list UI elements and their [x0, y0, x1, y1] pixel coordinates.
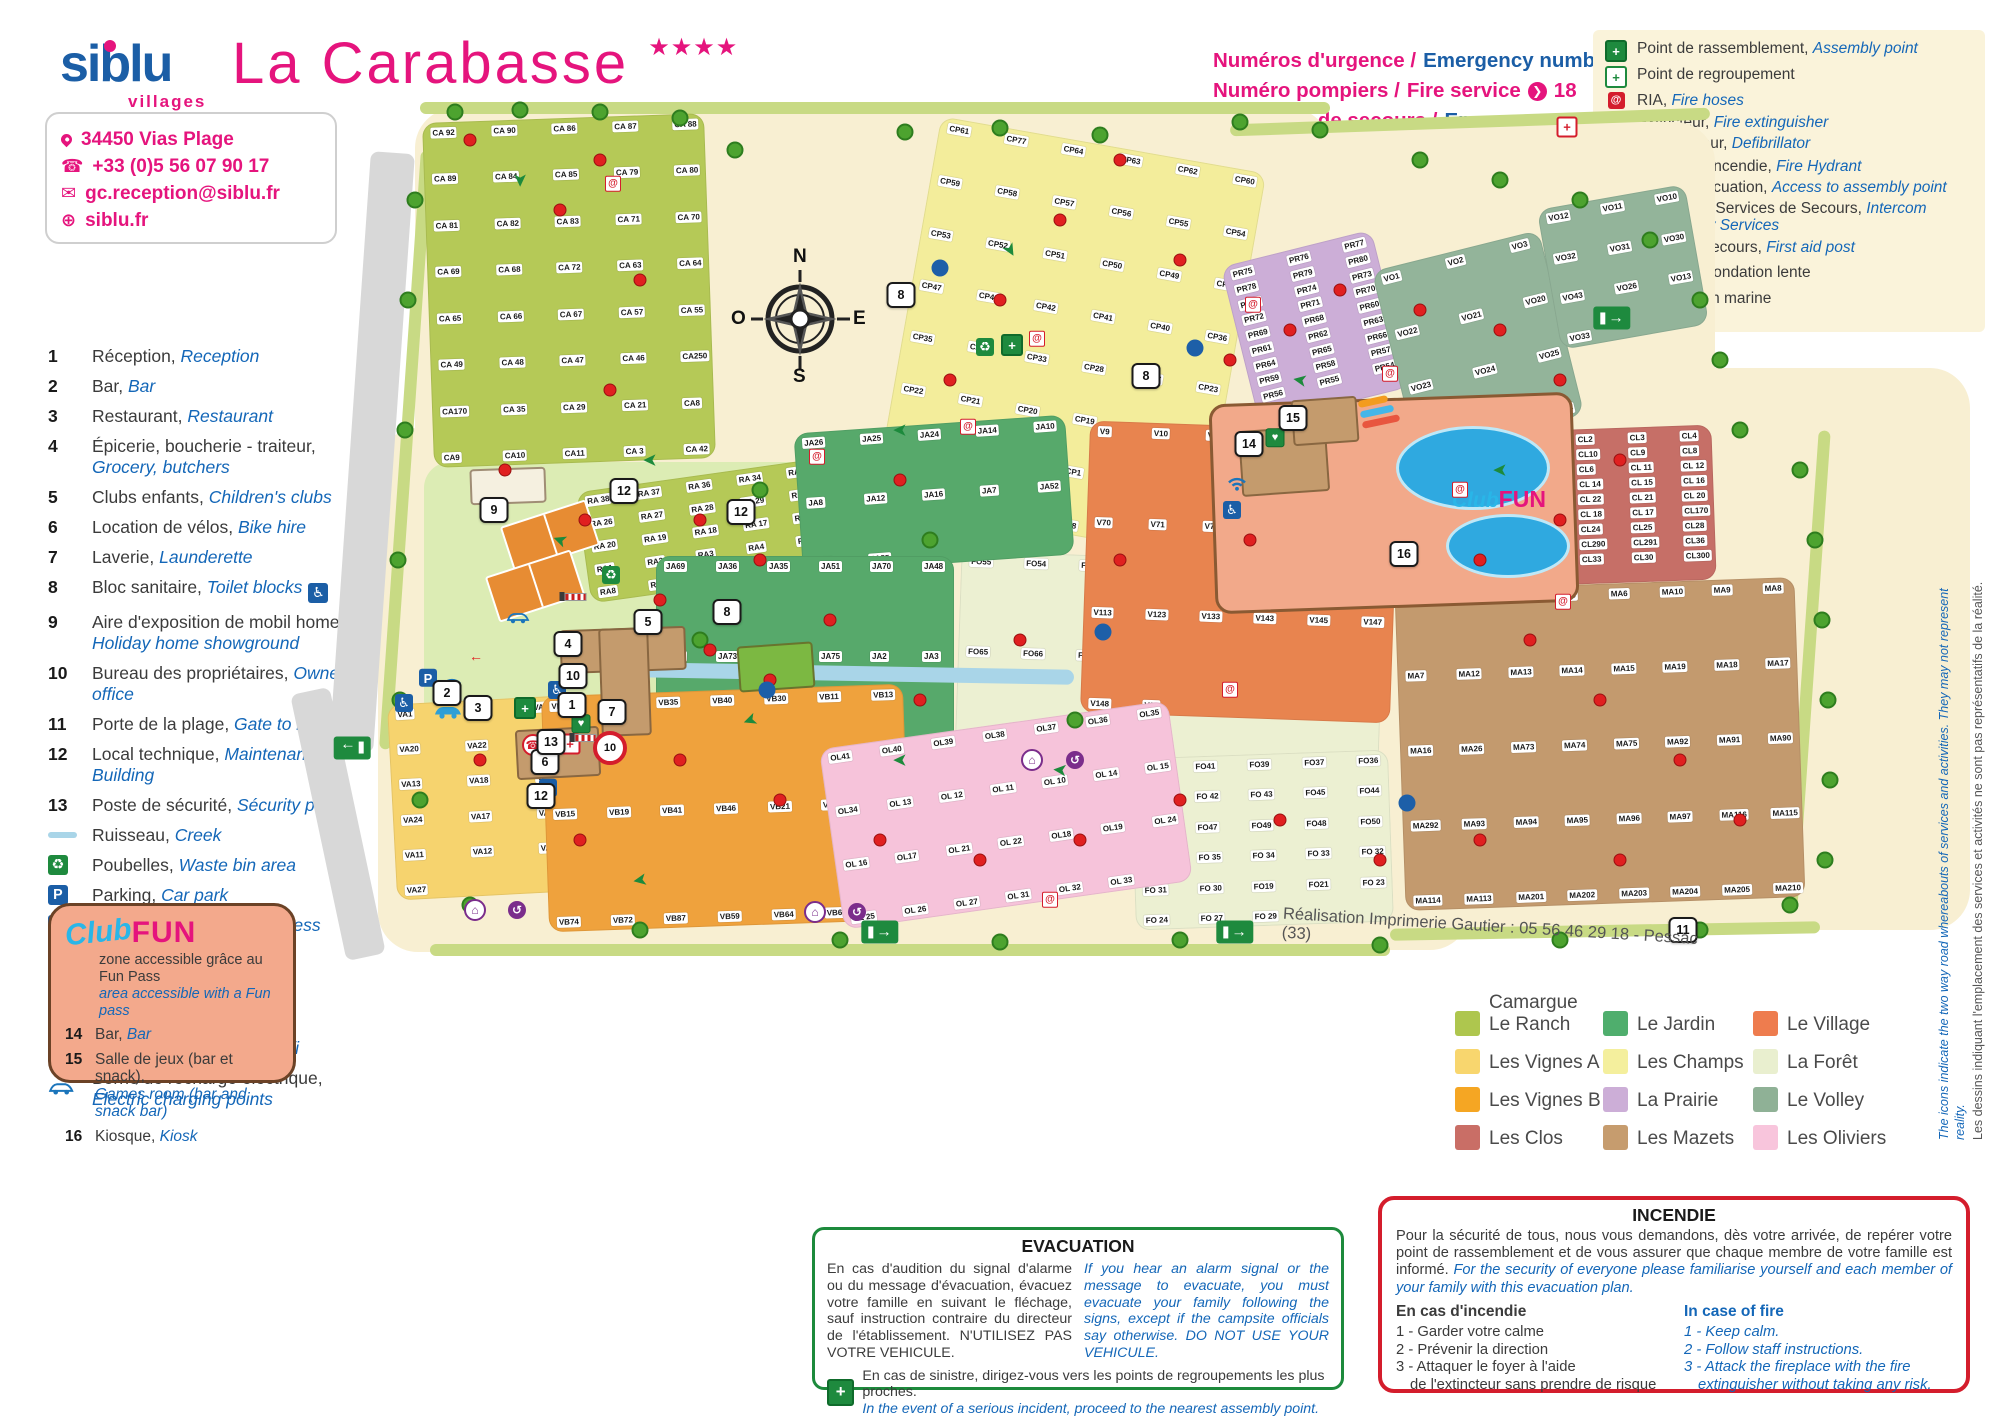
- plot-label: VO20: [1522, 292, 1548, 309]
- map-icon-assembly: +: [1001, 334, 1023, 356]
- plot-label: V10: [1152, 428, 1171, 440]
- plot-label: JA35: [767, 561, 790, 572]
- plot-label: MA90: [1768, 732, 1794, 744]
- plot-label: MA96: [1616, 813, 1642, 825]
- plot-label: CL8: [1680, 445, 1699, 457]
- plot-label: FO54: [1024, 558, 1048, 570]
- swimming-pool: [1446, 514, 1570, 578]
- fire-extinguisher-icon: [974, 854, 987, 867]
- facility-marker-8: 8: [713, 599, 742, 625]
- plot-label: MA9: [1712, 584, 1733, 596]
- plot-label: MA14: [1559, 664, 1585, 676]
- plot-label: CA250: [680, 350, 709, 362]
- plot-label: VB11: [817, 691, 841, 703]
- fire-extinguisher-icon: [1284, 324, 1297, 337]
- plot-label: MA205: [1722, 884, 1752, 896]
- plot-label: CL 12: [1680, 460, 1706, 472]
- facility-marker-5: 5: [634, 609, 663, 635]
- tree-icon: [1814, 612, 1831, 629]
- plot-label: CL 17: [1630, 507, 1656, 519]
- fire-step-en: 2 - Follow staff instructions.: [1684, 1342, 1952, 1360]
- map-icon-aid: +: [1557, 117, 1578, 138]
- tree-icon: [1792, 462, 1809, 479]
- tree-icon: [672, 110, 689, 127]
- plot-label: CP35: [910, 330, 936, 345]
- flood-risk-icon: ⌂: [464, 899, 486, 921]
- plot-label: CA 81: [433, 220, 460, 232]
- plot-label: VO13: [1668, 270, 1694, 285]
- assembly-point-icon: +: [1001, 334, 1023, 356]
- fire-instructions-box: INCENDIE Pour la sécurité de tous, nous …: [1378, 1196, 1970, 1393]
- plot-label: JA70: [870, 561, 893, 572]
- facility-marker-10: 10: [559, 663, 588, 689]
- plot-label: CL 21: [1630, 492, 1656, 504]
- plot-label: OL 27: [953, 896, 980, 911]
- plot-label: VO32: [1553, 250, 1579, 265]
- plot-label: JA48: [922, 561, 945, 572]
- plot-label: MA19: [1662, 661, 1688, 673]
- tree-icon: [992, 120, 1009, 137]
- incendie-en-column: In case of fire 1 - Keep calm.2 - Follow…: [1684, 1303, 1952, 1395]
- plot-label: OL38: [982, 728, 1007, 742]
- plot-label: PR79: [1290, 266, 1316, 282]
- fire-extinguisher-icon: [604, 384, 617, 397]
- plot-label: PR80: [1345, 252, 1371, 268]
- plot-label: VB46: [714, 803, 738, 815]
- plot-label: MA94: [1513, 816, 1539, 828]
- area-color-swatch: [1603, 1011, 1628, 1036]
- fire-extinguisher-icon: [1614, 854, 1627, 867]
- fire-hose-icon: @: [1245, 296, 1261, 312]
- plot-label: CA10: [503, 450, 528, 462]
- plot-label: OL 11: [990, 781, 1017, 795]
- plot-label: CP40: [1147, 319, 1173, 334]
- plot-label: CP51: [1042, 247, 1068, 262]
- incendie-intro: Pour la sécurité de tous, nous vous dema…: [1396, 1228, 1952, 1297]
- plot-label: V70: [1094, 517, 1113, 529]
- plot-label: CL 14: [1577, 478, 1603, 490]
- plot-label: CA 70: [675, 211, 702, 223]
- tree-icon: [447, 104, 464, 121]
- compass-north: N: [793, 246, 807, 268]
- plot-label: MA74: [1562, 739, 1588, 751]
- plot-label: CA 71: [615, 213, 642, 225]
- fire-hose-icon: @: [1452, 481, 1468, 497]
- tree-icon: [1822, 772, 1839, 789]
- plot-label: FO50: [1358, 816, 1382, 828]
- plot-label: CP77: [1004, 133, 1030, 148]
- plot-label: CA 85: [553, 169, 580, 181]
- fire-extinguisher-icon: [1014, 634, 1027, 647]
- fire-extinguisher-icon: [1174, 794, 1187, 807]
- plot-label: MA113: [1464, 893, 1494, 905]
- plot-label: CL30: [1632, 552, 1656, 564]
- plot-label: FO39: [1247, 759, 1271, 771]
- plot-label: OL 32: [1056, 881, 1083, 896]
- map-icon-redarrow: ←: [469, 648, 483, 666]
- plot-label: VA27: [404, 884, 428, 896]
- evacuation-note: En cas de sinistre, dirigez-vous vers le…: [862, 1368, 1329, 1417]
- plot-label: OL 31: [1005, 888, 1032, 903]
- barrier-icon: [560, 592, 587, 601]
- plot-label: MA114: [1413, 895, 1443, 907]
- facility-marker-8: 8: [1132, 363, 1161, 389]
- marine-submersion-icon: ↺: [508, 901, 526, 919]
- plot-label: VO25: [1536, 346, 1562, 363]
- plot-label: OL39: [931, 735, 956, 749]
- fire-hose-icon: @: [1382, 365, 1398, 381]
- fire-extinguisher-icon: [894, 474, 907, 487]
- speed-limit-sign: 10: [593, 731, 627, 765]
- area-legend-item: Les Clos: [1455, 1125, 1603, 1150]
- fire-extinguisher-icon: [944, 374, 957, 387]
- plot-label: CP54: [1223, 225, 1249, 240]
- facility-marker-7: 7: [598, 699, 627, 725]
- plot-label: V133: [1199, 611, 1222, 623]
- evacuation-direction-icon: ➤: [510, 172, 531, 187]
- plot-label: CL 22: [1578, 493, 1604, 505]
- fire-hose-icon: @: [605, 173, 621, 192]
- first-aid-icon: +: [1557, 117, 1578, 138]
- plot-label: CP61: [946, 123, 972, 138]
- plot-label: CP21: [958, 393, 984, 408]
- evacuation-direction-icon: ➤: [892, 750, 907, 771]
- emergency-exit-icon: →: [1216, 920, 1253, 943]
- area-legend-item: La Forêt: [1753, 1049, 1928, 1074]
- map-icon-recycle: ♻: [976, 338, 994, 356]
- plot-label: CP50: [1099, 257, 1125, 272]
- plot-label: CA 83: [554, 216, 581, 228]
- tree-icon: [1782, 897, 1799, 914]
- plot-label: OL37: [1034, 721, 1059, 735]
- map-edge-band: [430, 944, 1390, 956]
- facility-marker-4: 4: [554, 631, 583, 657]
- assembly-point-icon: +: [827, 1379, 854, 1406]
- plot-label: VB41: [660, 804, 684, 816]
- fire-hydrant-icon: [759, 682, 776, 699]
- plot-label: OL 12: [938, 789, 965, 804]
- incendie-title: INCENDIE: [1396, 1205, 1952, 1226]
- fire-hose-icon: @: [809, 446, 825, 465]
- plot-label: MA16: [1408, 745, 1434, 757]
- plot-label: VO10: [1654, 190, 1680, 205]
- red-arrow-icon: ←: [469, 648, 483, 664]
- plot-label: FO 43: [1248, 789, 1275, 801]
- fire-extinguisher-icon: [1524, 634, 1537, 647]
- plot-label: FO 34: [1250, 849, 1277, 861]
- marine-submersion-icon: ↺: [848, 903, 866, 921]
- plot-label: CA 57: [619, 306, 646, 318]
- plot-label: JA75: [819, 651, 842, 662]
- fire-extinguisher-icon: [654, 594, 667, 607]
- plot-label: PR64: [1253, 356, 1279, 372]
- map-icon-flood: ⌂: [464, 899, 486, 921]
- flood-risk-icon: ⌂: [804, 901, 826, 923]
- plot-label: PR61: [1249, 341, 1275, 357]
- plot-label: VB87: [664, 912, 688, 924]
- facility-marker-8: 8: [887, 282, 916, 308]
- tree-icon: [1807, 532, 1824, 549]
- plot-label: FO45: [1303, 787, 1327, 799]
- plot-label: CL6: [1577, 464, 1596, 476]
- plot-label: FO 35: [1196, 851, 1223, 863]
- fire-hydrant-icon: [1399, 795, 1416, 812]
- fire-extinguisher-icon: [554, 204, 567, 217]
- tree-icon: [412, 792, 429, 809]
- plot-label: RA8: [597, 585, 618, 599]
- plot-label: JA16: [922, 488, 946, 501]
- plot-label: CA 35: [501, 404, 528, 416]
- plot-label: PR68: [1301, 311, 1327, 327]
- tree-icon: [407, 192, 424, 209]
- plot-label: JA14: [975, 424, 999, 437]
- fire-extinguisher-icon: [1274, 814, 1287, 827]
- fire-hose-icon: @: [1222, 679, 1238, 698]
- plot-label: CA 68: [496, 264, 523, 276]
- area-name: Le Village: [1787, 1014, 1870, 1036]
- fire-extinguisher-icon: [1554, 374, 1567, 387]
- facility-marker-15: 15: [1279, 405, 1308, 431]
- plot-label: CL291: [1631, 537, 1659, 549]
- fire-extinguisher-icon: [594, 154, 607, 167]
- area-color-swatch: [1603, 1049, 1628, 1074]
- plot-label: RA 37: [635, 486, 663, 501]
- map-icon-flood: ⌂: [1021, 749, 1043, 771]
- plot-label: CL24: [1579, 523, 1603, 535]
- plot-label: JA25: [860, 432, 884, 445]
- tree-icon: [512, 102, 529, 119]
- plot-label: MA75: [1614, 738, 1640, 750]
- plot-label: FO65: [966, 646, 990, 658]
- plot-label: MA95: [1564, 814, 1590, 826]
- plot-label: OL 33: [1108, 874, 1135, 889]
- fire-extinguisher-icon: [824, 614, 837, 627]
- plot-label: MA292: [1411, 820, 1441, 832]
- area-legend-item: Le Jardin: [1603, 992, 1753, 1036]
- area-name: Les Oliviers: [1787, 1128, 1886, 1150]
- plot-label: CA 92: [430, 127, 457, 139]
- evacuation-note-fr: En cas de sinistre, dirigez-vous vers le…: [862, 1368, 1324, 1401]
- plot-label: OL18: [1049, 828, 1074, 842]
- tree-icon: [897, 124, 914, 141]
- plot-label: MA93: [1462, 818, 1488, 830]
- evacuation-note-en: In the event of a serious incident, proc…: [862, 1401, 1319, 1417]
- fire-extinguisher-icon: [1474, 554, 1487, 567]
- area-color-swatch: [1455, 1087, 1480, 1112]
- plot-label: V145: [1307, 614, 1330, 626]
- plot-label: MA18: [1714, 659, 1740, 671]
- area-legend-item: Les Vignes A: [1455, 1049, 1603, 1074]
- plot-label: FO37: [1302, 757, 1326, 769]
- plot-label: VA11: [403, 849, 427, 861]
- court-line: [528, 564, 543, 606]
- facility-marker-12: 12: [610, 478, 639, 504]
- plot-label: OL 22: [997, 835, 1024, 850]
- plot-label: FO36: [1356, 755, 1380, 767]
- evacuation-title: EVACUATION: [827, 1236, 1329, 1257]
- emergency-exit-icon: →: [1216, 920, 1253, 943]
- fire-hose-icon: @: [1029, 328, 1045, 347]
- plot-label: CL3: [1627, 432, 1646, 444]
- plot-label: OL 14: [1093, 767, 1120, 782]
- plot-label: CA 80: [674, 164, 701, 176]
- evacuation-direction-icon: ➤: [1492, 460, 1507, 481]
- waste-bin-icon: ♻: [976, 338, 994, 356]
- area-name: Les Champs: [1637, 1052, 1744, 1074]
- plot-label: CL9: [1628, 447, 1647, 459]
- tree-icon: [400, 292, 417, 309]
- plot-label: CA 72: [556, 262, 583, 274]
- plot-label: FO47: [1195, 821, 1219, 833]
- fire-extinguisher-icon: [1334, 284, 1347, 297]
- plot-label: RA4: [746, 541, 767, 555]
- plot-label: CP49: [1157, 267, 1183, 282]
- disclaimer-en: The icons indicate the two way road wher…: [1936, 575, 1968, 1140]
- plot-label: CP22: [901, 383, 927, 398]
- fire-hose-icon: @: [809, 448, 825, 464]
- map-icon-marine: ↺: [508, 901, 526, 919]
- area-name: Camargue Le Ranch: [1489, 992, 1578, 1036]
- plot-label: VA24: [401, 814, 425, 826]
- fire-hose-icon: @: [1382, 363, 1398, 382]
- plot-label: FO66: [1021, 648, 1045, 660]
- disabled-access-icon: ♿: [395, 694, 413, 712]
- plot-label: PR76: [1286, 250, 1312, 266]
- plot-label: CL 11: [1629, 462, 1655, 474]
- zone-mazets: MA2MA3MA4MA5MA6MA10MA9MA8MA7MA12MA13MA14…: [1395, 577, 1806, 911]
- plot-label: CP53: [928, 227, 954, 242]
- plot-label: CA 46: [620, 352, 647, 364]
- area-legend-item: Les Vignes B: [1455, 1087, 1603, 1112]
- fire-extinguisher-icon: [579, 514, 592, 527]
- map-icon-recycle: ♻: [602, 566, 620, 584]
- compass-west: O: [731, 308, 746, 330]
- plot-label: CA9: [442, 452, 462, 464]
- electric-charging-icon: [506, 611, 530, 624]
- plot-label: CA 67: [558, 308, 585, 320]
- incendie-fr-title: En cas d'incendie: [1396, 1303, 1664, 1321]
- incendie-intro-en: For the security of everyone please fami…: [1396, 1262, 1952, 1295]
- fire-extinguisher-icon: [1414, 304, 1427, 317]
- map-icon-carentry: [433, 704, 463, 725]
- tree-icon: [1817, 852, 1834, 869]
- compass-rose: NESO: [733, 252, 868, 387]
- plot-label: FO19: [1251, 881, 1275, 893]
- fire-step-fr: 2 - Prévenir la direction: [1396, 1342, 1664, 1360]
- plot-label: OL41: [828, 750, 853, 764]
- fire-extinguisher-icon: [474, 754, 487, 767]
- assembly-point-icon: +: [514, 697, 536, 719]
- plot-label: CL4: [1679, 430, 1698, 442]
- plot-label: JA3: [922, 651, 941, 662]
- incendie-fr-list: 1 - Garder votre calme2 - Prévenir la di…: [1396, 1324, 1664, 1394]
- plot-label: VB40: [710, 695, 734, 707]
- plot-label: VO33: [1567, 330, 1593, 345]
- plot-label: PR74: [1294, 281, 1320, 297]
- plot-label: VO24: [1472, 362, 1498, 379]
- facility-marker-12: 12: [527, 783, 556, 809]
- fire-extinguisher-icon: [499, 464, 512, 477]
- fire-extinguisher-icon: [754, 554, 767, 567]
- plot-label: PR75: [1230, 264, 1256, 280]
- evacuation-text-en: If you hear an alarm signal or the messa…: [1084, 1261, 1329, 1362]
- plot-label: CL 15: [1629, 477, 1655, 489]
- plot-label: VO22: [1394, 324, 1420, 341]
- plot-label: RA 38: [585, 493, 613, 508]
- plot-label: CL290: [1579, 538, 1607, 550]
- facility-marker-3: 3: [464, 695, 493, 721]
- plot-label: CP28: [1081, 361, 1107, 376]
- plot-label: FO48: [1304, 818, 1328, 830]
- plot-label: VO1: [1381, 270, 1403, 286]
- plot-label: VA13: [399, 778, 423, 790]
- plot-label: OL 16: [843, 857, 870, 872]
- plot-label: VB15: [553, 808, 577, 820]
- area-legend-item: La Prairie: [1603, 1087, 1753, 1112]
- plot-label: MA91: [1717, 734, 1743, 746]
- tree-icon: [832, 932, 849, 949]
- map-icon-marine: ↺: [848, 903, 866, 921]
- tree-icon: [1572, 192, 1589, 209]
- plot-label: CA 65: [437, 313, 464, 325]
- fire-extinguisher-icon: [694, 514, 707, 527]
- facility-marker-13: 13: [537, 729, 566, 755]
- plot-label: CL 18: [1578, 508, 1604, 520]
- plot-label: OL17: [894, 850, 919, 864]
- fire-hose-icon: @: [1555, 593, 1571, 609]
- tree-icon: [1820, 692, 1837, 709]
- fire-extinguisher-icon: [1734, 814, 1747, 827]
- plot-label: CP59: [937, 175, 963, 190]
- plot-label: CA 55: [679, 304, 706, 316]
- fire-extinguisher-icon: [1054, 214, 1067, 227]
- plot-label: RA 27: [638, 508, 666, 523]
- fire-extinguisher-icon: [1114, 154, 1127, 167]
- tree-icon: [592, 104, 609, 121]
- tree-icon: [992, 934, 1009, 951]
- plot-label: MA26: [1459, 743, 1485, 755]
- tree-icon: [1732, 422, 1749, 439]
- flood-risk-icon: ⌂: [1021, 749, 1043, 771]
- plot-label: FO49: [1249, 820, 1273, 832]
- area-name: Le Jardin: [1637, 1014, 1715, 1036]
- area-name: Le Volley: [1787, 1090, 1864, 1112]
- fire-hose-icon: @: [1029, 330, 1045, 346]
- fire-extinguisher-icon: [1244, 534, 1257, 547]
- plot-label: CP64: [1061, 143, 1087, 158]
- plot-label: CL28: [1683, 520, 1707, 532]
- plot-label: JA36: [716, 561, 739, 572]
- facility-marker-1: 1: [558, 692, 587, 718]
- tree-icon: [1092, 127, 1109, 144]
- evacuation-direction-icon: ➤: [1492, 460, 1507, 481]
- area-name: Les Clos: [1489, 1128, 1563, 1150]
- plot-label: MA13: [1508, 666, 1534, 678]
- plot-label: V9: [1098, 426, 1112, 437]
- wifi-icon: [1228, 476, 1247, 491]
- fire-step-fr: de l'extincteur sans prendre de risque: [1396, 1377, 1664, 1395]
- plot-label: PR77: [1341, 236, 1367, 252]
- plot-label: JA8: [806, 497, 825, 509]
- plot-label: OL 21: [946, 842, 973, 857]
- fire-hose-icon: @: [1555, 591, 1571, 610]
- tree-icon: [1712, 352, 1729, 369]
- plot-label: VO31: [1607, 240, 1633, 255]
- facility-marker-12: 12: [727, 499, 756, 525]
- assembly-point-icon: +: [827, 1379, 854, 1406]
- area-legend-item: Les Champs: [1603, 1049, 1753, 1074]
- plot-label: FO44: [1357, 785, 1381, 797]
